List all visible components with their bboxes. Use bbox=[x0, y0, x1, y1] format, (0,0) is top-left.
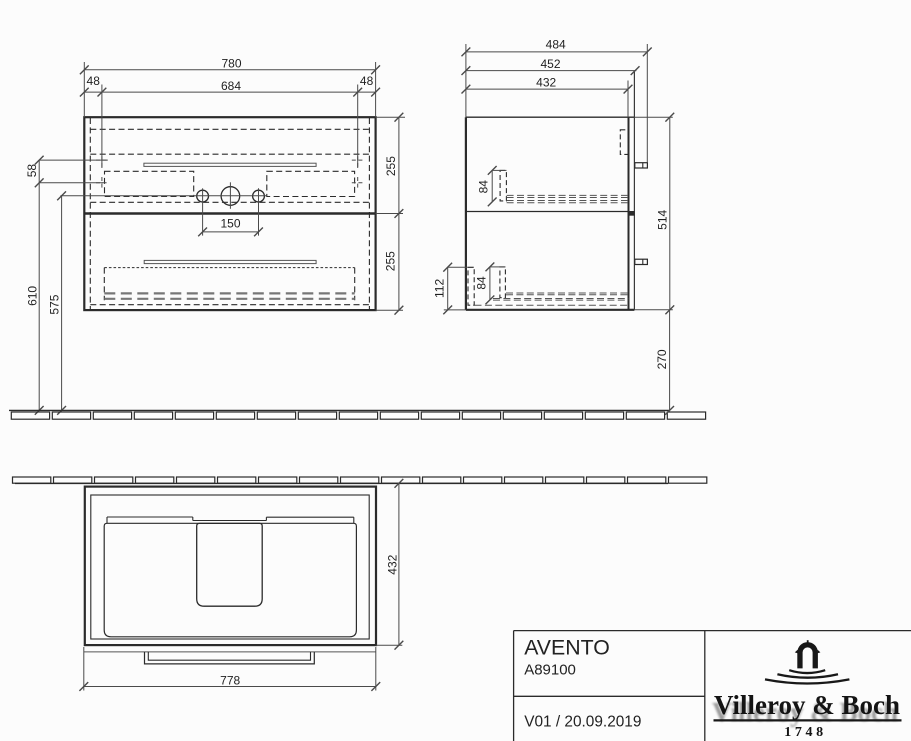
svg-text:84: 84 bbox=[474, 276, 488, 290]
svg-text:150: 150 bbox=[220, 216, 240, 230]
svg-text:48: 48 bbox=[87, 74, 101, 88]
svg-text:452: 452 bbox=[540, 57, 560, 71]
svg-text:48: 48 bbox=[360, 74, 374, 88]
svg-text:780: 780 bbox=[221, 56, 241, 70]
svg-text:575: 575 bbox=[48, 294, 62, 314]
svg-text:255: 255 bbox=[384, 156, 398, 176]
svg-text:AVENTO: AVENTO bbox=[524, 635, 610, 659]
svg-text:V01 / 20.09.2019: V01 / 20.09.2019 bbox=[524, 713, 641, 730]
svg-text:432: 432 bbox=[386, 554, 400, 574]
svg-text:Villeroy & Boch: Villeroy & Boch bbox=[714, 690, 900, 720]
svg-text:270: 270 bbox=[655, 349, 669, 369]
svg-text:112: 112 bbox=[433, 279, 447, 298]
svg-text:58: 58 bbox=[25, 164, 39, 178]
svg-text:255: 255 bbox=[383, 251, 397, 271]
svg-text:610: 610 bbox=[25, 286, 39, 306]
svg-text:84: 84 bbox=[476, 180, 490, 194]
svg-text:1748: 1748 bbox=[784, 725, 826, 740]
svg-text:484: 484 bbox=[546, 37, 566, 51]
svg-text:514: 514 bbox=[655, 209, 669, 229]
svg-text:A89100: A89100 bbox=[524, 662, 576, 679]
svg-text:778: 778 bbox=[220, 673, 240, 687]
svg-text:432: 432 bbox=[536, 76, 556, 90]
svg-text:684: 684 bbox=[221, 79, 241, 93]
